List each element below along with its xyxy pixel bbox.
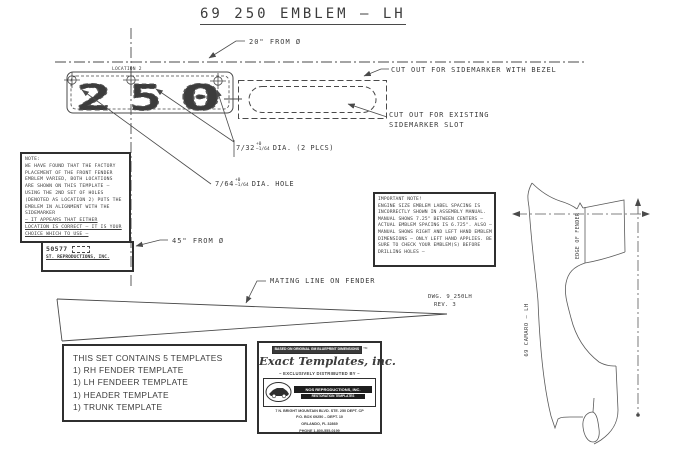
digit-0: 0 <box>179 78 222 119</box>
dia-description: DIA. (2 PLCS) <box>273 144 334 152</box>
note-line: NOTE: <box>25 157 127 164</box>
sticker-number-row: 50577 <box>46 245 129 253</box>
contents-item: 1) RH FENDER TEMPLATE <box>73 364 245 376</box>
maker-sticker: 50577 ST. REPRODUCTIONS, INC. <box>41 241 134 272</box>
emblem-stem <box>593 398 594 412</box>
label-location: LOCATION 2 <box>112 66 142 72</box>
banner-row: BASED ON ORIGINAL GM BLUEPRINT DIMENSION… <box>259 346 380 354</box>
company-address-line: P.O. BOX 69250 – DEPT. 10 <box>259 415 380 420</box>
digit-5: 5 <box>129 78 162 119</box>
contents-item: 1) TRUNK TEMPLATE <box>73 401 245 413</box>
note-line: WE HAVE FOUND THAT THE FACTORY <box>25 164 127 171</box>
label-cutout-existing-2: SIDEMARKER SLOT <box>389 121 464 129</box>
slot-cutout-stadium <box>249 87 376 113</box>
note-line: USING THE 2ND SET OF HOLES <box>25 191 127 198</box>
contents-title: THIS SET CONTAINS 5 TEMPLATES <box>73 352 245 364</box>
company-box: NOS REPRODUCTIONS, INC. RESTORATION TEMP… <box>263 378 376 407</box>
leader-45in <box>136 240 168 246</box>
contents-item: 1) LH FENDEER TEMPLATE <box>73 376 245 388</box>
note-line: (DENOTED AS LOCATION 2) PUTS THE <box>25 198 127 205</box>
leader-20in <box>209 41 245 58</box>
h-arrow-left <box>512 211 520 217</box>
drawing-revision: REV. 3 <box>434 302 456 308</box>
drawing-title: 69 250 EMBLEM – LH <box>200 6 406 25</box>
important-line: ACTUAL EMBLEM SPACING IS 6.725". ALSO – <box>378 223 492 230</box>
brand-logo-text: Exact Templates, inc. <box>259 355 380 368</box>
label-69-camaro-lh: 69 CAMARO – LH <box>524 303 530 356</box>
dia-fraction: 7/64 <box>215 180 234 188</box>
sticker-number: 50577 <box>46 245 68 253</box>
fender-rear-bottom <box>585 252 625 263</box>
leader-bezel <box>364 69 389 76</box>
dia-callout-7-64: 7/64 +0 −1/64 DIA. HOLE <box>215 179 294 189</box>
note-line: CHOICE WHICH TO USE – <box>25 232 127 239</box>
fender-wheel-arch <box>565 263 616 366</box>
label-cutout-existing-1: CUT OUT FOR EXISTING <box>389 111 489 119</box>
label-edge-of-fender: EDGE OF FENDER <box>575 212 581 259</box>
mating-line-top <box>57 299 447 314</box>
template-drawing-page: 2 5 0 <box>0 0 680 454</box>
dia-description: DIA. HOLE <box>252 180 294 188</box>
leader-existing-slot <box>348 104 387 117</box>
company-address-line: PHONE 1-800-555-0199 <box>259 429 380 434</box>
dia-fraction: 7/32 <box>236 144 255 152</box>
fender-top-edge <box>532 183 577 209</box>
note-line: ARE SHOWN ON THIS TEMPLATE – <box>25 184 127 191</box>
trademark-mark: TM <box>363 346 367 350</box>
important-line: MANUAL SHOWS RIGHT AND LEFT HAND EMBLEM <box>378 230 492 237</box>
company-name: NOS REPRODUCTIONS, INC. <box>294 386 373 393</box>
important-line: INCORRECTLY SHOWN IN ASSEMBLY MANUAL. <box>378 210 492 217</box>
mating-line-bottom <box>62 314 447 341</box>
company-address-line: 7 N. BRIGHT MOUNTAIN BLVD. STE. 250 DEPT… <box>259 409 380 414</box>
dia-callout-7-32: 7/32 +0 −1/64 DIA. (2 PLCS) <box>236 143 334 153</box>
fender-rear-section <box>583 200 625 252</box>
banner-text: BASED ON ORIGINAL GM BLUEPRINT DIMENSION… <box>272 346 363 354</box>
note-box: NOTE: WE HAVE FOUND THAT THE FACTORY PLA… <box>20 152 131 243</box>
v-line-dot <box>636 413 640 417</box>
mating-line-wedge <box>57 299 447 341</box>
important-line: SURE TO CHECK YOUR EMBLEM(S) BEFORE <box>378 243 492 250</box>
contents-item: 1) HEADER TEMPLATE <box>73 389 245 401</box>
important-note-box: IMPORTANT NOTE! ENGINE SIZE EMBLEM LABEL… <box>373 192 496 267</box>
drawing-number: DWG. 9_250LH <box>428 294 472 300</box>
company-subtitle: RESTORATION TEMPLATES <box>301 394 365 399</box>
label-45-from-centerline: 45" FROM Ø <box>172 237 224 245</box>
distributed-by-label: – EXCLUSIVELY DISTRIBUTED BY – <box>259 371 380 376</box>
dia-tolerance-stack: +0 −1/64 <box>235 179 249 189</box>
label-cutout-bezel: CUT OUT FOR SIDEMARKER WITH BEZEL <box>391 66 556 74</box>
emblem-digits: 2 5 0 <box>76 78 222 119</box>
note-line: LOCATION IS CORRECT – IT IS YOUR <box>25 225 127 232</box>
v-arrow-top <box>635 198 641 206</box>
important-line: DRILLING HOLES – <box>378 250 492 257</box>
important-line: IMPORTANT NOTE! <box>378 197 492 204</box>
fender-bottom-shelf <box>560 417 583 418</box>
h-arrow-right <box>642 211 650 217</box>
sidemarker-cutouts <box>224 81 387 119</box>
tolerance-minus: −1/64 <box>235 184 249 189</box>
note-line: – IT APPEARS THAT EITHER <box>25 218 127 225</box>
sticker-name: ST. REPRODUCTIONS, INC. <box>46 255 129 260</box>
leader-mating-line <box>246 281 266 303</box>
fender-left-edge <box>528 183 560 428</box>
brand-block: BASED ON ORIGINAL GM BLUEPRINT DIMENSION… <box>257 341 382 434</box>
label-mating-line: MATING LINE ON FENDER <box>270 277 375 285</box>
company-name-column: NOS REPRODUCTIONS, INC. RESTORATION TEMP… <box>292 386 374 399</box>
sticker-dashed-box <box>72 246 90 253</box>
emblem-blob <box>583 412 599 442</box>
fender-lower-right <box>594 366 618 444</box>
fender-profile-view <box>512 183 650 444</box>
tolerance-minus: −1/64 <box>256 148 270 153</box>
mating-line-left <box>57 299 62 341</box>
car-logo-icon <box>265 381 292 403</box>
company-address-line: ORLANDO, FL 32869 <box>259 422 380 427</box>
set-contents-box: THIS SET CONTAINS 5 TEMPLATES 1) RH FEND… <box>62 344 247 422</box>
fender-notch <box>577 203 583 209</box>
label-20-from-centerline: 20" FROM Ø <box>249 38 301 46</box>
dia-tolerance-stack: +0 −1/64 <box>256 143 270 153</box>
